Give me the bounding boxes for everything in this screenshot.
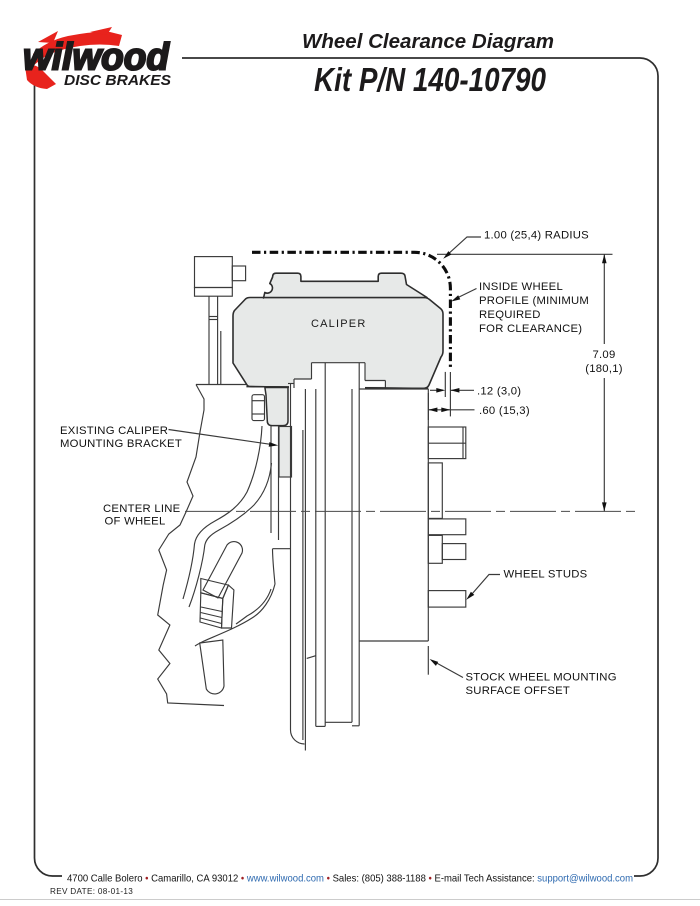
svg-text:MOUNTING BRACKET: MOUNTING BRACKET (60, 438, 182, 450)
svg-text:REQUIRED: REQUIRED (479, 309, 541, 321)
svg-text:PROFILE (MINIMUM: PROFILE (MINIMUM (479, 295, 589, 307)
svg-text:7.09: 7.09 (593, 349, 616, 361)
svg-text:REV DATE: 08-01-13: REV DATE: 08-01-13 (50, 887, 133, 896)
svg-text:DISC BRAKES: DISC BRAKES (64, 73, 171, 89)
svg-text:Kit P/N 140-10790: Kit P/N 140-10790 (314, 61, 547, 98)
svg-text:SURFACE OFFSET: SURFACE OFFSET (466, 685, 571, 697)
svg-text:INSIDE WHEEL: INSIDE WHEEL (479, 281, 563, 293)
svg-text:1.00 (25,4) RADIUS: 1.00 (25,4) RADIUS (484, 230, 589, 242)
svg-text:FOR CLEARANCE): FOR CLEARANCE) (479, 323, 582, 335)
svg-text:STOCK WHEEL MOUNTING: STOCK WHEEL MOUNTING (466, 672, 617, 684)
svg-text:CENTER LINE: CENTER LINE (103, 503, 181, 515)
svg-text:.12 (3,0): .12 (3,0) (477, 386, 521, 398)
svg-text:(180,1): (180,1) (585, 363, 623, 375)
svg-text:OF WHEEL: OF WHEEL (105, 516, 166, 528)
svg-text:CALIPER: CALIPER (311, 318, 366, 330)
svg-text:Wheel Clearance Diagram: Wheel Clearance Diagram (302, 30, 554, 53)
svg-text:.60 (15,3): .60 (15,3) (479, 405, 530, 417)
svg-text:4700 Calle Bolero • Camarillo,: 4700 Calle Bolero • Camarillo, CA 93012 … (67, 874, 633, 885)
svg-text:WHEEL STUDS: WHEEL STUDS (504, 569, 588, 581)
svg-text:EXISTING CALIPER: EXISTING CALIPER (60, 425, 168, 437)
